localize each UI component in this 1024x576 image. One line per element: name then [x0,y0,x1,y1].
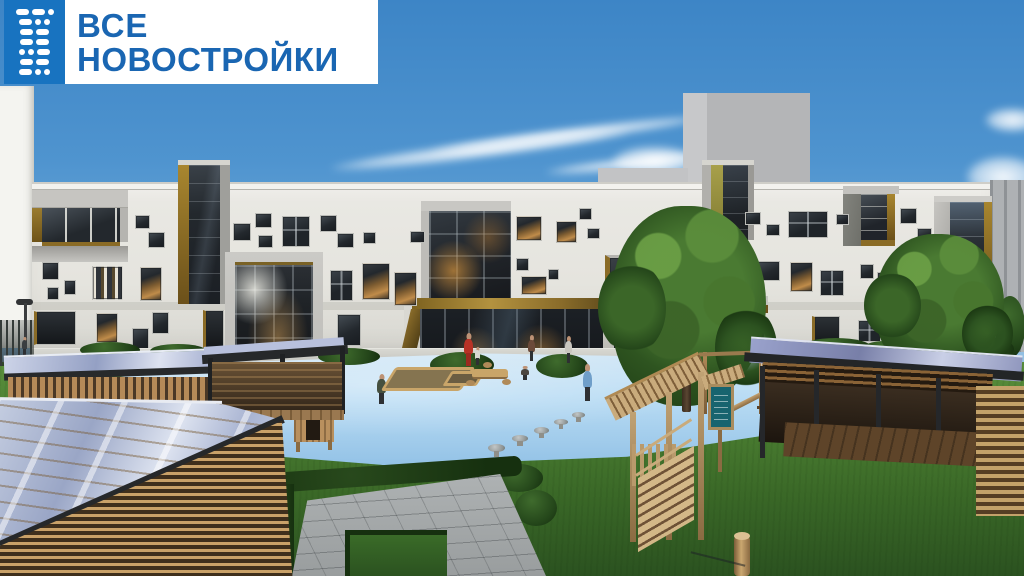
bay-glass [42,208,120,242]
bay-window-right [843,186,899,252]
window [860,264,874,279]
logo-icon-row [10,69,59,75]
logo-icon-mark [20,59,33,65]
picnic-table [472,369,508,379]
window [47,287,59,300]
window [337,233,354,248]
window [140,267,162,301]
picnic-stool [466,380,475,386]
picnic-stool [502,379,511,385]
window [135,215,150,229]
wood-pole [734,536,750,576]
person-entrance [527,335,536,361]
child-playground [581,364,594,401]
logo-icon-mark [32,9,45,15]
window [92,266,123,300]
window [64,280,76,295]
window [766,224,780,236]
logo-icon-mark [35,69,41,75]
person-torso [464,339,472,354]
window [790,262,813,292]
logo-icon-mark [44,19,50,25]
child-walkway [474,347,481,365]
bay-glass [861,194,887,240]
mushroom-stool [554,419,568,425]
person-legs [567,353,571,363]
logo-icon-mark [20,29,33,35]
mushroom-stool [534,427,549,434]
bay-underside [32,246,128,262]
white-building-left [0,86,34,348]
logo-icon-row [10,19,59,25]
bay-window-left [32,190,128,262]
logo-text: ВСЕ НОВОСТРОЙКИ [65,0,378,84]
person-legs [476,358,479,365]
window [330,270,353,301]
mushroom-stool [488,444,505,452]
column-side [748,165,754,240]
window [282,216,310,247]
window [152,312,169,334]
window [521,276,547,295]
window [42,262,59,280]
woman-red-dress [463,333,474,366]
glazed-bay-center [421,201,511,304]
logo-line-2: НОВОСТРОЙКИ [77,43,378,76]
bay-glass [429,211,511,299]
logo-icon-mark [36,39,49,45]
person-legs [466,353,470,366]
bay-frame [120,208,128,242]
window [579,208,592,220]
logo-line-1: ВСЕ [77,9,378,42]
person-legs [585,387,590,401]
window [836,214,849,225]
logo-icon [4,0,65,84]
logo-icon-mark [44,69,50,75]
window [258,235,273,248]
window [900,208,917,224]
logo-icon-mark [28,49,34,55]
info-board [708,384,734,430]
window [320,215,337,232]
gold-accent [178,165,189,304]
window [516,216,542,241]
person-legs [530,351,534,361]
glazed-stair-column-gold [178,160,230,304]
person-legs [379,393,383,404]
logo-icon-row [10,49,59,55]
mushroom-stool [512,435,528,442]
window [745,212,761,225]
picnic-stool [483,362,492,368]
wooden-pavilion-front-left [0,388,348,576]
logo-icon-mark [37,49,50,55]
play-tower [610,334,742,552]
person-torso [565,341,572,353]
logo-icon-row [10,9,59,15]
logo-icon-row [10,59,59,65]
planted-square [345,530,447,576]
bay-frame [421,201,511,211]
vse-novostroyki-logo[interactable]: ВСЕ НОВОСТРОЙКИ [4,0,378,84]
wood-slat-wall [976,386,1024,516]
bay-frame [843,186,899,194]
person-torso [528,340,535,352]
window [516,258,529,271]
bay-frame [32,190,128,208]
logo-icon-mark [35,19,41,25]
window [362,263,390,300]
wooden-pavilion-right [744,328,1024,523]
gold-accent [861,240,895,246]
logo-icon-mark [19,49,25,55]
window [255,213,272,228]
window [548,269,559,280]
logo-icon-mark [19,19,32,25]
wood-post [698,372,704,540]
person-legs [523,375,527,380]
logo-icon-mark [20,39,33,45]
logo-icon-row [10,29,59,35]
person-torso [583,371,593,388]
bush [515,490,557,526]
mushroom-stool [572,412,585,418]
logo-icon-mark [48,9,54,15]
window [788,211,828,238]
architectural-render: ВСЕ НОВОСТРОЙКИ [0,0,1024,576]
wood-post [718,430,722,472]
person-entrance [564,336,573,363]
window [363,232,376,244]
column-glazing [189,165,220,304]
post [760,366,765,458]
logo-icon-mark [36,29,49,35]
window [410,231,425,243]
logo-icon-mark [19,69,32,75]
window [556,221,577,243]
logo-icon-row [10,39,59,45]
gold-soffit [411,298,611,309]
window [394,272,417,306]
child-playground [520,366,530,380]
gold-accent [32,208,42,242]
window [587,228,600,239]
window [233,223,251,241]
slat-roof [604,352,709,421]
bay-frame [421,211,429,304]
logo-icon-mark [16,9,29,15]
logo-icon-mark [36,59,49,65]
gold-accent [887,194,895,240]
window [820,270,844,296]
window [148,232,165,248]
